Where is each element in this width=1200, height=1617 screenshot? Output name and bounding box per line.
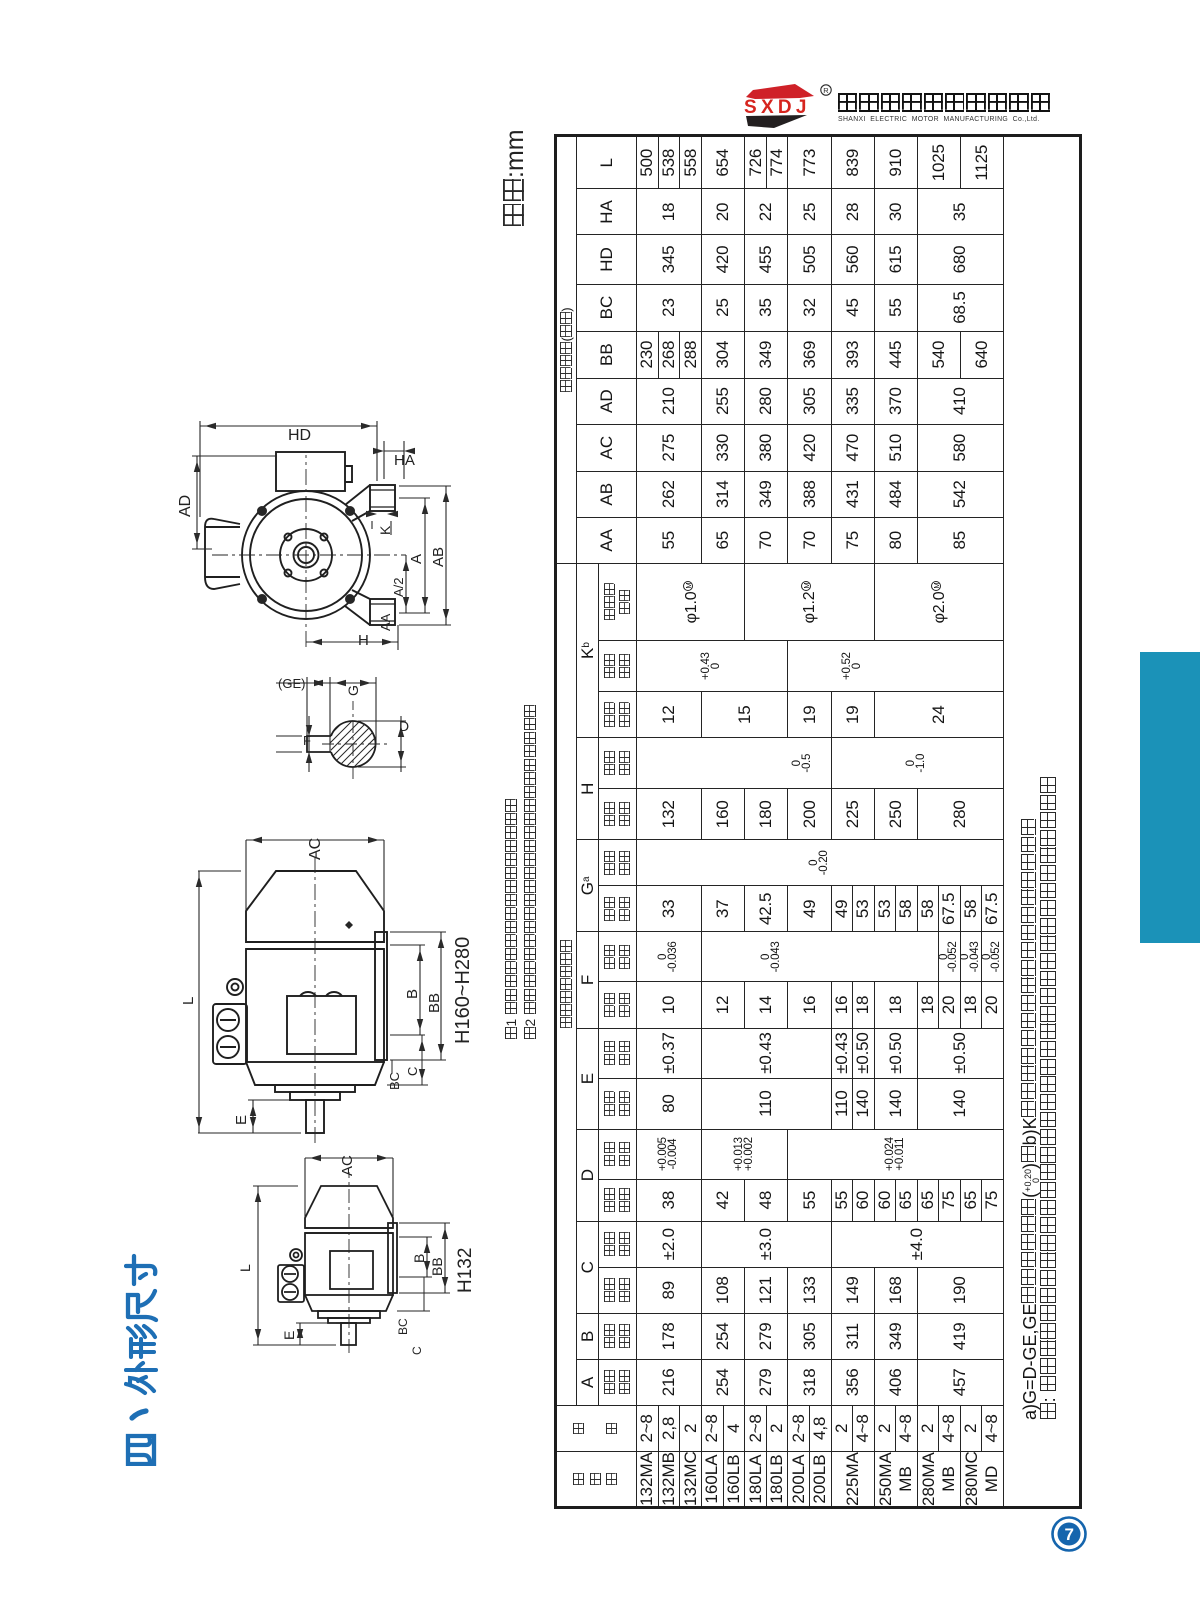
svg-text:R: R [823, 86, 829, 95]
svg-text:(GE): (GE) [278, 676, 305, 691]
svg-text:AB: AB [430, 547, 447, 567]
svg-text:E: E [281, 1331, 297, 1340]
svg-text:HD: HD [288, 427, 311, 444]
svg-text:D: D [399, 718, 409, 734]
svg-text:K: K [377, 525, 393, 535]
svg-text:AA: AA [378, 613, 393, 631]
svg-text:F: F [303, 733, 311, 748]
svg-text:H: H [358, 632, 369, 649]
svg-text:H160~H280: H160~H280 [452, 937, 474, 1044]
svg-text:C: C [410, 1346, 424, 1355]
svg-text:C: C [405, 1067, 420, 1076]
svg-text:HA: HA [394, 452, 415, 469]
svg-text:AD: AD [177, 495, 194, 517]
svg-text:BC: BC [387, 1072, 402, 1090]
svg-text:B: B [404, 989, 421, 999]
svg-text:AC: AC [307, 838, 324, 860]
svg-text:BB: BB [429, 1257, 445, 1276]
svg-text:L: L [180, 997, 197, 1005]
svg-text:BB: BB [426, 993, 443, 1013]
svg-text:A/2: A/2 [391, 577, 406, 597]
svg-text:7: 7 [1065, 1525, 1074, 1544]
svg-text:E: E [233, 1115, 250, 1125]
svg-text:A: A [408, 554, 425, 564]
svg-text:H132: H132 [455, 1248, 476, 1293]
svg-text:B: B [411, 1254, 427, 1263]
svg-text:L: L [237, 1264, 253, 1272]
svg-text:SXDJ: SXDJ [744, 97, 808, 118]
svg-text:G: G [345, 685, 361, 696]
svg-text:AC: AC [339, 1155, 356, 1176]
svg-text:BC: BC [396, 1318, 410, 1335]
